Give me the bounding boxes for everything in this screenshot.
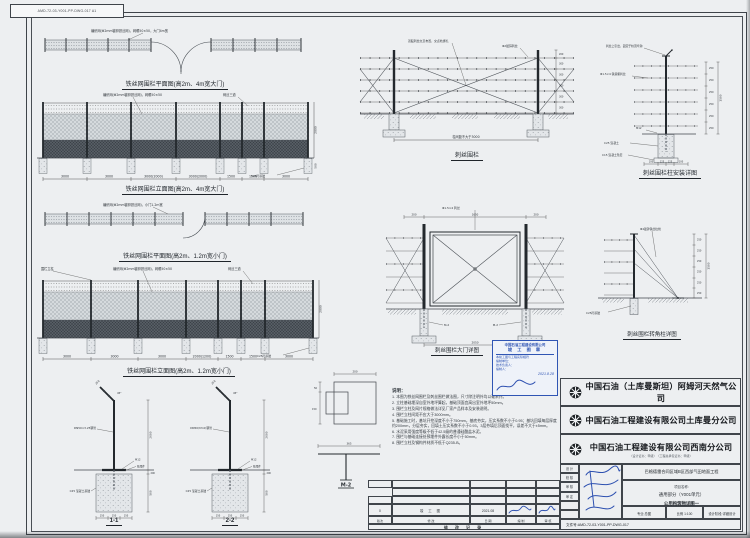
fence-plan-4m-gate-drawing: 编织网(Φ2mm镀锌铁丝网)，网眼50×50，大门4m宽 xyxy=(33,26,317,78)
gate-tag-left: M-2 xyxy=(444,323,449,327)
postd-pad-label: C15 混凝土垫层 xyxy=(602,153,623,157)
barbed-wires xyxy=(360,58,574,113)
svg-text:500: 500 xyxy=(149,490,153,496)
svg-text:250: 250 xyxy=(697,271,702,274)
svg-text:45°: 45° xyxy=(233,391,238,395)
svg-text:200: 200 xyxy=(559,53,564,56)
svg-text:1500: 1500 xyxy=(227,174,235,178)
svg-text:100: 100 xyxy=(679,161,684,164)
elev2-mesh-note: 编织网(Φ2mm镀锌铁丝网)，网眼50×50 xyxy=(113,266,172,271)
svg-text:250: 250 xyxy=(709,127,714,130)
unit-name: 通用部分（Y001单元） xyxy=(623,492,740,498)
svg-text:1500: 1500 xyxy=(225,354,233,358)
svg-text:1500: 1500 xyxy=(249,174,257,178)
stamp-line: 编制人： xyxy=(496,368,554,372)
note-line: 8. 围栏立柱及钢构件材质不低于Q235-B。 xyxy=(392,441,558,446)
note-line: 1. 本图为铁丝网围栏及刺丝围栏做法图，尺寸除注明外均以毫米计。 xyxy=(392,395,558,400)
section-2-2: 250 45° M12 预埋件 C25 混凝土基础 DN50(δ3.0)钢管 2… xyxy=(186,379,272,520)
elev2-post-note: 围栏立柱 xyxy=(41,266,55,271)
section-1-1: 250 45° M12 预埋件 C25 混凝土基础 DN50×3.25钢管 20… xyxy=(70,379,156,520)
postd-top-note: 刺丝上引出，固定于柱顶弯钩 xyxy=(606,44,643,48)
svg-text:DN50(δ3.0)钢管: DN50(δ3.0)钢管 xyxy=(190,426,212,430)
note-line: 5. 基础施工时，基坑开挖深度不小于750mm，基底夯实，压实系数不小于0.95… xyxy=(392,419,558,430)
svg-text:预埋件: 预埋件 xyxy=(253,465,261,469)
elev2-dim-line xyxy=(43,357,313,361)
rev-footer: 修 改 记 录 xyxy=(368,524,560,530)
doc-number-cell: 文件号:AMD-72-03-Y001-PP-DWG-017 xyxy=(560,519,741,530)
rev-empty-cell xyxy=(368,480,392,488)
svg-text:100: 100 xyxy=(649,161,654,164)
stamp-title: 竣 工 图 章 xyxy=(496,347,554,354)
barbed-fence-elevation-drawing: 双股刺丝交叉布置，交点处绑扎 Φ2镀锌刺丝 xyxy=(352,36,582,148)
cpost-wires xyxy=(604,235,678,298)
svg-text:200: 200 xyxy=(267,472,272,475)
elev1-mesh-note: 编织网(Φ2mm镀锌铁丝网)，网眼50×50 xyxy=(103,92,162,97)
rev-author-signature xyxy=(506,504,536,516)
mdet-total-dim: 200 xyxy=(353,370,358,374)
svg-text:3000(2000): 3000(2000) xyxy=(144,174,163,178)
svg-text:250: 250 xyxy=(709,103,714,106)
petrochina-logo-icon xyxy=(569,386,582,399)
svg-text:250: 250 xyxy=(709,67,714,70)
fence-elevation-4m-gate-drawing: 编织网(Φ2mm镀锌铁丝网)，网眼50×50 刺丝三道 C25砼基础 xyxy=(33,90,318,182)
gate-ground-hatch xyxy=(388,310,562,315)
notes-block: 说明： 1. 本图为铁丝网围栏及刺丝围栏做法图，尺寸除注明外均以毫米计。 2. … xyxy=(392,388,558,447)
cpost-caption: 刺丝围栏转角柱详图 xyxy=(582,330,722,340)
svg-text:3000: 3000 xyxy=(282,174,290,178)
cpost-stay-label: Φ4镀锌铁丝拉线 xyxy=(640,227,661,231)
note-line: 4. 围栏立柱间距不应大于3000mm。 xyxy=(392,413,558,418)
elev2-height-dim: 2000 xyxy=(319,305,323,313)
elev2-footings xyxy=(39,339,317,354)
plan1-caption: 铁丝网围栏平面图(高2m、4m宽大门) xyxy=(33,79,317,90)
note-line: 7. 围栏与基础连接处预埋件外露长度不小于50mm。 xyxy=(392,435,558,440)
svg-text:250: 250 xyxy=(94,379,101,386)
titleblock-signatures-scrawl xyxy=(580,463,624,517)
svg-text:200: 200 xyxy=(412,212,417,216)
barbed-gate-detail-drawing: Φ1.5×4 刺丝 200 1650 200 xyxy=(380,202,572,348)
plan1-annotation: 编织网(Φ2mm镀锌铁丝网)，网眼50×50，大门4m宽 xyxy=(91,28,169,33)
svg-text:3000: 3000 xyxy=(105,174,113,178)
company-row-1: 中国石油（土库曼斯坦）阿姆河天然气公司 xyxy=(560,378,741,406)
rev-empty-cell xyxy=(536,496,560,504)
svg-text:DN50×3.25钢管: DN50×3.25钢管 xyxy=(74,426,96,430)
gate-post-left xyxy=(423,224,426,309)
project-name-cell: 巴格德雷合同区域B区西部气田地面工程 xyxy=(622,464,741,480)
plan2-caption: 铁丝网围栏平面图(高2m、1.2m宽小门) xyxy=(33,251,317,262)
rev-empty-cell xyxy=(506,488,536,496)
mdet-dim-365: 365 xyxy=(347,442,352,446)
svg-text:300: 300 xyxy=(559,63,564,66)
svg-text:200: 200 xyxy=(534,212,539,216)
rev-empty-cell xyxy=(506,496,536,504)
gate-bottom-dim-text: 2050 xyxy=(471,340,478,344)
postd-ladders xyxy=(705,62,720,134)
gate-wire-note: Φ1.5×4 刺丝 xyxy=(442,205,460,210)
sig-label-review: 审 核 xyxy=(560,482,579,491)
elev2-footing-note: C25砼基础 xyxy=(257,354,271,358)
elev1-dims: 3000 3000 3000(2000) 3000(2000) 1500 150… xyxy=(61,174,290,178)
project-label: 项目名称: xyxy=(623,484,740,489)
mdet-left-ladder xyxy=(319,382,322,424)
svg-text:250: 250 xyxy=(697,292,702,295)
svg-text:300: 300 xyxy=(559,96,564,99)
gate-post-right xyxy=(525,224,528,309)
company-cert: （设计证书：甲级） （工程总承包证书：甲级） xyxy=(582,454,740,458)
svg-text:250: 250 xyxy=(709,91,714,94)
svg-text:250: 250 xyxy=(697,250,702,253)
company-row-2: 中国石油工程建设有限公司土库曼分公司 xyxy=(560,406,741,434)
gate-swing-arcs xyxy=(151,42,211,74)
rev-reviewer-signature xyxy=(536,504,560,516)
postd-caption: 刺丝围栏柱安装详图 xyxy=(596,168,744,179)
elev1-caption: 铁丝网围栏立面图(高2m、4m宽大门) xyxy=(33,184,317,195)
elev1-dim-line xyxy=(43,177,308,181)
cpost-row-dims: 250 250 250 250 250 250 xyxy=(697,239,702,296)
rev-empty-cell xyxy=(470,480,506,488)
postd-wire-label: Φ1.5×4 铁蒺藜刺丝 xyxy=(600,72,626,76)
sig-label-check: 校 核 xyxy=(560,473,579,482)
revision-table: 0 竣 工 图 2021.08 版次 修 改 日 期 编 制 审 核 修 改 记… xyxy=(368,480,560,530)
rev-label-date: 日 期 xyxy=(470,516,506,524)
rev-date: 2021.08 xyxy=(470,504,506,516)
petrochina-logo-icon xyxy=(569,443,582,456)
svg-text:C25 混凝土基础: C25 混凝土基础 xyxy=(186,489,207,493)
rev-label-version: 版次 xyxy=(368,516,392,524)
rev-empty-cell xyxy=(536,488,560,496)
petrochina-logo-icon xyxy=(569,414,582,427)
svg-text:500: 500 xyxy=(265,490,269,496)
svg-text:1650: 1650 xyxy=(472,212,479,216)
svg-text:250: 250 xyxy=(709,115,714,118)
postd-found-label: C25 混凝土 xyxy=(604,141,619,145)
svg-text:45°: 45° xyxy=(117,391,122,395)
gate-frame xyxy=(430,232,520,306)
rev-empty-cell xyxy=(368,496,392,504)
post-sections-drawing: 250 45° M12 预埋件 C25 混凝土基础 DN50×3.25钢管 20… xyxy=(52,374,290,522)
svg-text:3000: 3000 xyxy=(285,354,293,358)
rev-label-change: 修 改 xyxy=(392,516,470,524)
rev-label-author: 编 制 xyxy=(506,516,536,524)
svg-text:250: 250 xyxy=(210,379,217,386)
rev-empty-cell xyxy=(506,480,536,488)
svg-text:300: 300 xyxy=(559,107,564,110)
svg-text:250: 250 xyxy=(697,260,702,263)
svg-text:3000: 3000 xyxy=(63,354,71,358)
gate-tag-right: M-2 xyxy=(493,323,498,327)
company-name: 中国石油工程建设有限公司西南分公司 xyxy=(582,441,740,453)
rev-empty-cell xyxy=(392,488,470,496)
note-line: 2. 立柱基础埋深自室外地坪算起，基础顶面宜高出室外地坪50mm。 xyxy=(392,401,558,406)
postd-total-dim: 1500 xyxy=(719,94,723,101)
corner-post-detail-drawing: Φ4镀锌铁丝拉线 C25砼基础 xyxy=(582,222,722,328)
corner-doc-number: AMD-72-03-Y001-PP-DWG-017 A1 xyxy=(10,4,124,18)
signature-scrawl xyxy=(537,505,557,516)
elev2-barbed-wires xyxy=(43,284,313,291)
fence-elevation-small-gate-drawing: 围栏立柱 编织网(Φ2mm镀锌铁丝网)，网眼50×50 刺丝三道 C25砼基础 xyxy=(33,264,325,364)
mdet-dim-50: 50 xyxy=(314,387,318,390)
svg-text:C25 混凝土基础: C25 混凝土基础 xyxy=(70,489,91,493)
svg-text:2000(1200): 2000(1200) xyxy=(193,354,212,358)
sig-label-approve: 审 定 xyxy=(560,492,579,501)
svg-text:M12: M12 xyxy=(251,458,257,462)
rev-empty-cell xyxy=(392,480,470,488)
page-right-shadow xyxy=(746,0,750,538)
section-2-2-label: 2-2 xyxy=(210,518,250,526)
svg-text:2000: 2000 xyxy=(265,431,269,438)
embed-part-detail-drawing: 200 50 150 365 M-2 xyxy=(300,362,392,490)
rev-label-reviewer: 审 核 xyxy=(536,516,560,524)
small-gate-swing-arc xyxy=(183,216,205,238)
svg-text:300: 300 xyxy=(559,74,564,77)
cpost-ladders xyxy=(693,234,708,298)
svg-text:M12: M12 xyxy=(135,458,141,462)
gate-top-dims: 200 1650 200 xyxy=(412,212,539,216)
svg-text:3000: 3000 xyxy=(110,354,118,358)
svg-text:3000: 3000 xyxy=(61,174,69,178)
svg-text:预埋件: 预埋件 xyxy=(137,465,145,469)
svg-text:200: 200 xyxy=(151,472,156,475)
elev1-barb-note: 刺丝三道 xyxy=(223,92,237,97)
barbed-caption: 刺丝围栏 xyxy=(352,150,582,161)
barbed-posts xyxy=(393,50,539,114)
discipline-cell: 专业:总图 xyxy=(622,506,666,519)
rev-empty-cell xyxy=(470,488,506,496)
rev-empty-cell xyxy=(536,480,560,488)
rev-description: 竣 工 图 xyxy=(392,504,470,516)
stage-cell: 设计阶段:详细设计 xyxy=(703,506,741,519)
company-row-3: 中国石油工程建设有限公司西南分公司 （设计证书：甲级） （工程总承包证书：甲级） xyxy=(560,434,741,464)
drawing-sheet: AMD-72-03-Y001-PP-DWG-017 A1 编织网(Φ2mm镀锌铁… xyxy=(0,0,750,538)
note-line: 3. 围栏立柱及网片规格做法详见厂家产品样本及安装说明。 xyxy=(392,407,558,412)
svg-text:125: 125 xyxy=(668,161,673,164)
svg-text:2000: 2000 xyxy=(149,431,153,438)
elev1-footings xyxy=(39,159,312,174)
sig-label-empty xyxy=(560,510,579,519)
barbed-note2: Φ2镀锌刺丝 xyxy=(502,43,518,48)
elev2-barb-note: 刺丝三道 xyxy=(228,266,242,271)
elev1-footing-dim: 500 xyxy=(314,163,318,168)
postd-row-dims: 250 250 250 250 250 250 xyxy=(709,67,714,130)
scale-cell: 比例 1:100 xyxy=(666,506,703,519)
fence-plan-small-gate-drawing: 编织网(Φ2mm镀锌铁丝网)，小门1.2m宽 xyxy=(33,200,318,250)
rev-empty-cell xyxy=(392,496,470,504)
svg-text:1500: 1500 xyxy=(249,354,257,358)
company-name: 中国石油工程建设有限公司土库曼分公司 xyxy=(582,414,740,426)
svg-text:250: 250 xyxy=(697,282,702,285)
cpost-total-dim: 1500 xyxy=(707,262,711,269)
section-1-1-label: 1-1 xyxy=(94,518,134,526)
mdet-dim-150: 150 xyxy=(312,408,317,411)
elev1-height-dim: 2000 xyxy=(314,126,318,134)
svg-text:3000(2000): 3000(2000) xyxy=(189,174,208,178)
cpost-ground-hatch xyxy=(602,299,688,303)
signature-scrawl xyxy=(507,505,533,516)
plan2-annotation: 编织网(Φ2mm镀锌铁丝网)，小门1.2m宽 xyxy=(103,202,163,207)
cpost-found-label: C25砼基础 xyxy=(586,311,600,315)
stamp-signature-scrawl xyxy=(495,377,539,395)
barbed-post-detail-drawing: 刺丝上引出，固定于柱顶弯钩 Φ1.5×4 铁蒺藜刺丝 M12 C25 混凝土 xyxy=(596,40,744,166)
drawing-title-cell: 项目名称: 通用部分（Y001单元） 公用构筑物详图一 xyxy=(622,480,741,506)
svg-text:250: 250 xyxy=(709,79,714,82)
rev-number: 0 xyxy=(368,504,392,516)
barbed-span-dim: 柱间距不大于3000 xyxy=(452,134,479,139)
as-built-stamp: 中国石油工程建设有限公司 竣 工 图 章 本竣工图与工程实际相符 编制单位： 技… xyxy=(492,340,558,396)
postd-bolt-label: M12 xyxy=(636,126,642,130)
sig-label-design: 设 计 xyxy=(560,464,579,473)
barbed-row-dims: 200 300 300 300 300 300 xyxy=(559,53,564,110)
company-name: 中国石油（土库曼斯坦）阿姆河天然气公司 xyxy=(582,380,740,404)
svg-text:250: 250 xyxy=(697,239,702,242)
svg-text:3000: 3000 xyxy=(158,354,166,358)
svg-text:300: 300 xyxy=(559,85,564,88)
rev-empty-cell xyxy=(470,496,506,504)
svg-text:125: 125 xyxy=(660,161,665,164)
sig-label-empty xyxy=(560,501,579,510)
page-bottom-shadow xyxy=(0,531,750,538)
barbed-note1: 双股刺丝交叉布置，交点处绑扎 xyxy=(408,38,449,43)
